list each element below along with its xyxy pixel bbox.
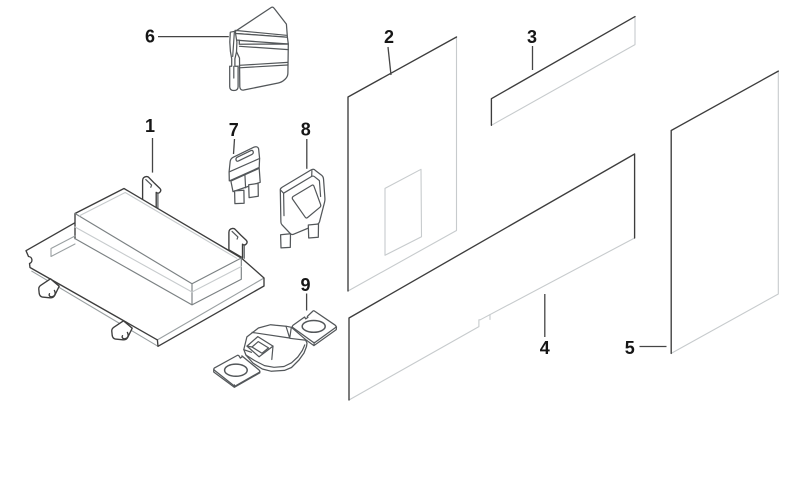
svg-text:4: 4	[540, 338, 550, 358]
svg-text:1: 1	[145, 116, 155, 136]
svg-text:6: 6	[145, 27, 155, 47]
svg-text:8: 8	[301, 120, 311, 140]
svg-text:7: 7	[229, 120, 239, 140]
svg-text:9: 9	[300, 275, 310, 295]
svg-text:2: 2	[384, 27, 394, 47]
svg-text:5: 5	[625, 338, 635, 358]
svg-text:3: 3	[527, 27, 537, 47]
